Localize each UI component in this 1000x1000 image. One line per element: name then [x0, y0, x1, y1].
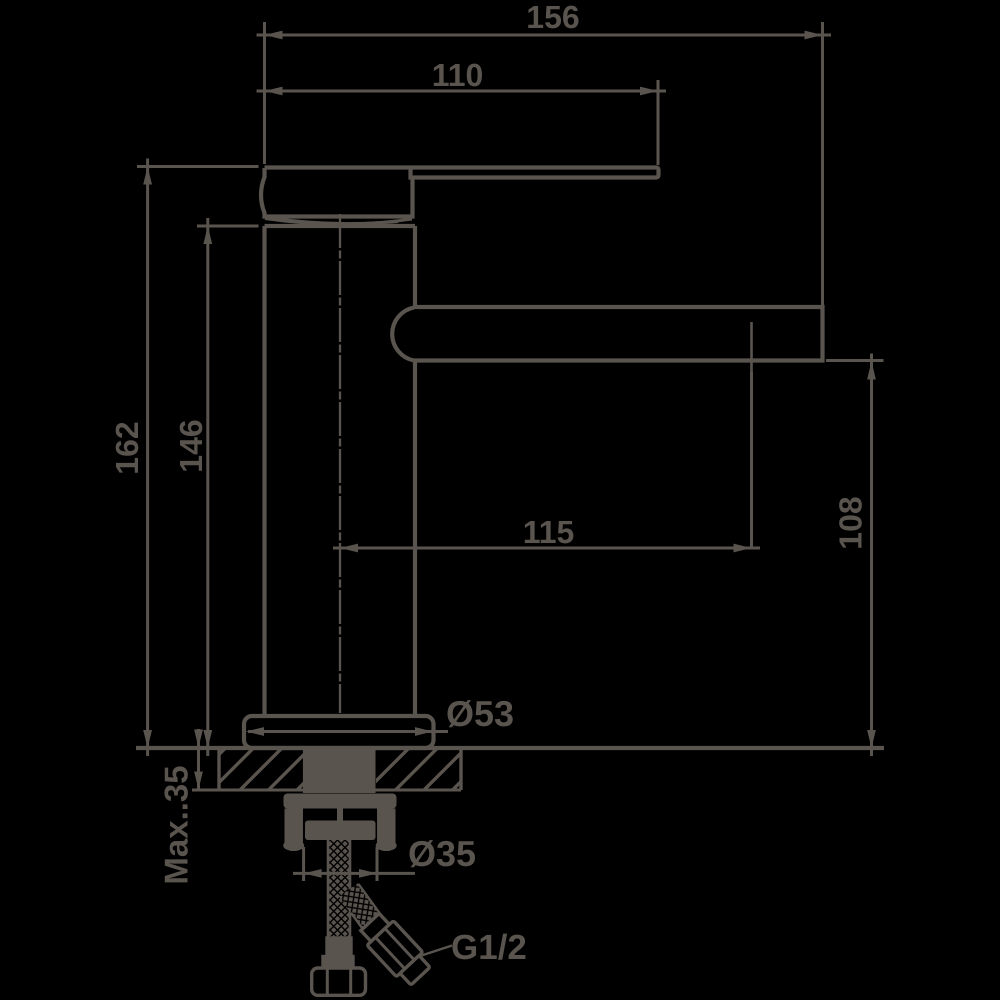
svg-text:Max..35: Max..35	[158, 765, 195, 884]
svg-text:162: 162	[109, 421, 145, 474]
svg-text:110: 110	[432, 57, 484, 93]
svg-text:G1/2: G1/2	[451, 928, 527, 967]
svg-text:108: 108	[833, 496, 869, 549]
svg-text:146: 146	[173, 419, 209, 472]
svg-text:156: 156	[526, 0, 579, 35]
svg-text:115: 115	[523, 514, 575, 550]
svg-text:Ø53: Ø53	[446, 693, 514, 734]
svg-text:Ø35: Ø35	[408, 833, 476, 874]
